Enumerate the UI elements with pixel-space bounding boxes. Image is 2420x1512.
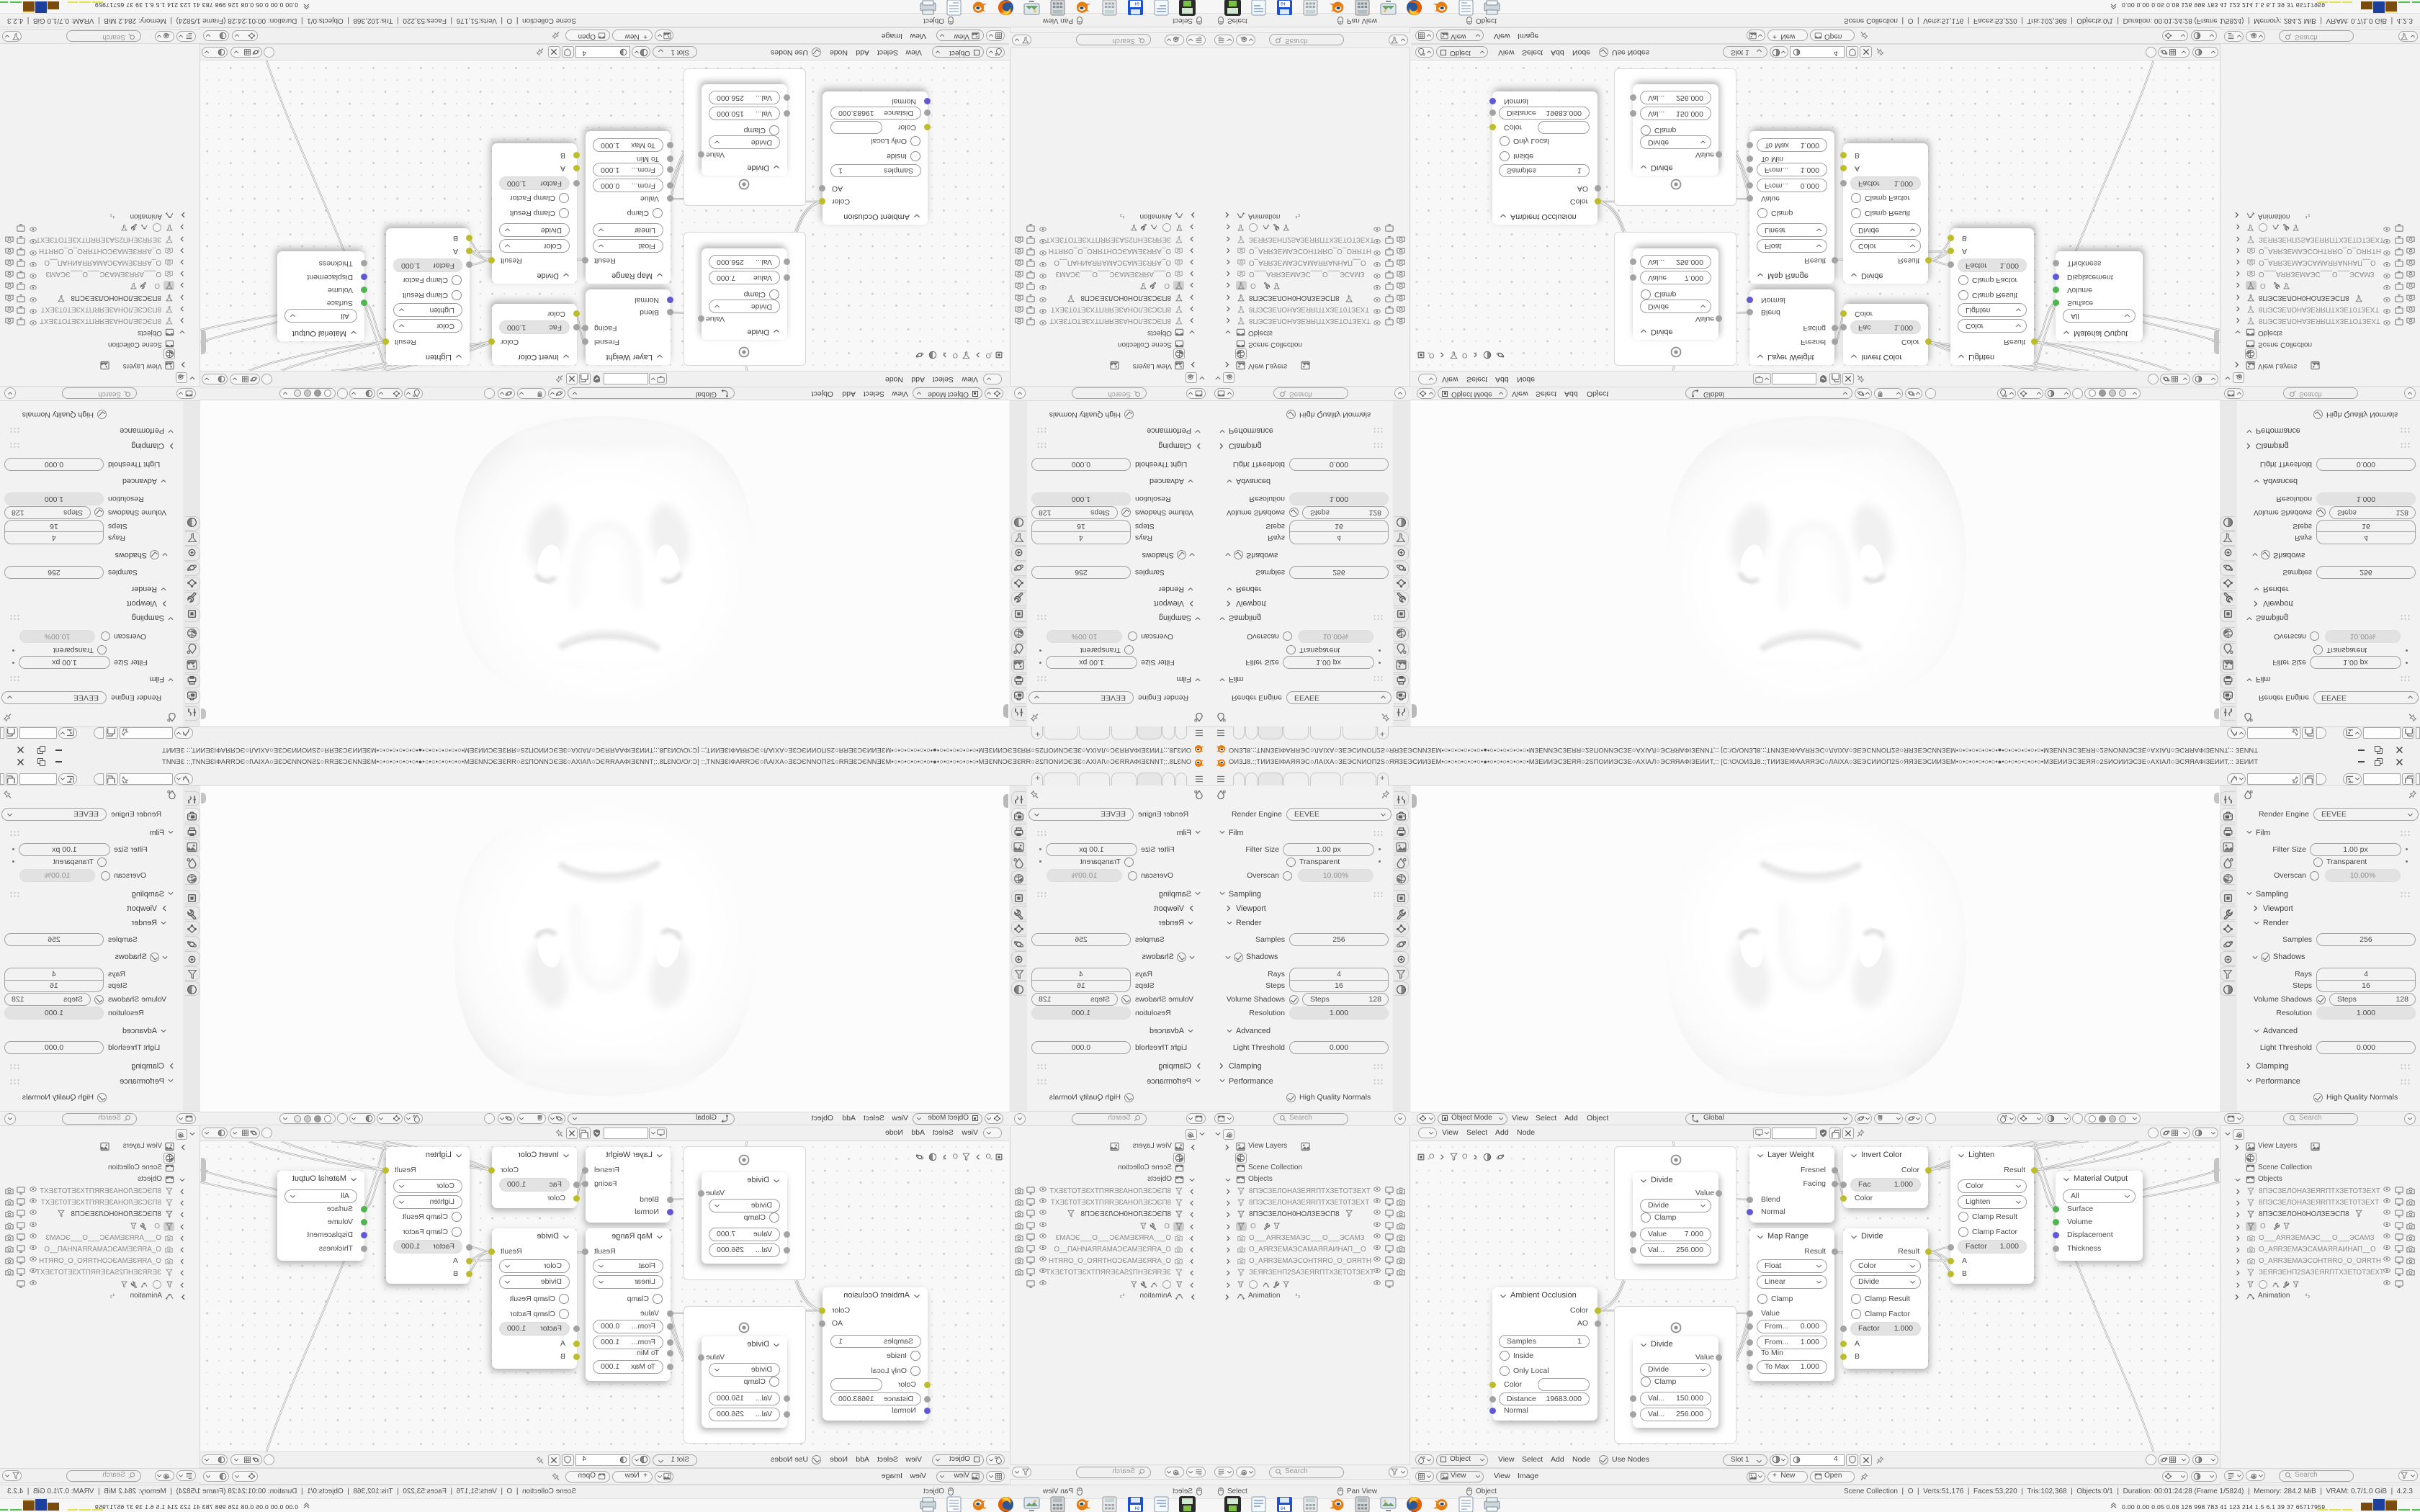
svg-text:64: 64 xyxy=(1134,1507,1139,1511)
svg-text:64: 64 xyxy=(1281,1507,1286,1511)
svg-text:64: 64 xyxy=(1134,1,1139,5)
svg-text:64: 64 xyxy=(1281,1,1286,5)
